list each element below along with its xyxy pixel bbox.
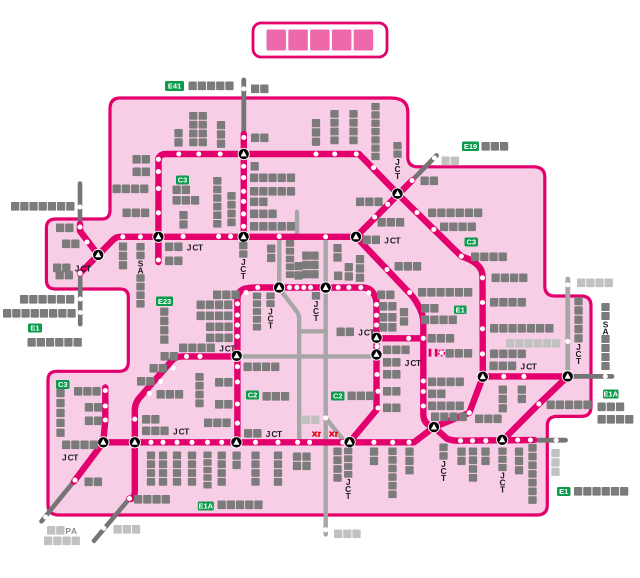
svg-text:A: A: [602, 326, 608, 336]
svg-text:A: A: [137, 266, 143, 276]
svg-text:T: T: [86, 263, 92, 273]
svg-text:E1A: E1A: [199, 502, 214, 511]
svg-text:C2: C2: [248, 391, 258, 400]
svg-text:T: T: [230, 343, 236, 353]
svg-text:T: T: [396, 235, 402, 245]
svg-text:E1A: E1A: [603, 390, 618, 399]
svg-text:C3: C3: [178, 176, 188, 185]
svg-text:J: J: [75, 263, 80, 273]
svg-text:T: T: [576, 356, 582, 366]
svg-text:T: T: [198, 242, 204, 252]
svg-text:T: T: [277, 429, 283, 439]
svg-text:T: T: [346, 491, 352, 501]
svg-text:T: T: [241, 271, 247, 281]
svg-text:T: T: [532, 361, 538, 371]
svg-text:T: T: [500, 484, 506, 494]
svg-text:J: J: [384, 235, 389, 245]
svg-text:J: J: [405, 358, 410, 368]
svg-text:T: T: [395, 171, 401, 181]
svg-text:J: J: [521, 361, 526, 371]
svg-text:J: J: [358, 327, 363, 337]
svg-text:C3: C3: [466, 238, 476, 247]
svg-text:J: J: [219, 343, 224, 353]
svg-text:E23: E23: [158, 297, 171, 306]
svg-text:A: A: [71, 526, 77, 536]
svg-text:J: J: [187, 242, 192, 252]
svg-text:T: T: [416, 358, 422, 368]
svg-text:T: T: [73, 452, 79, 462]
svg-text:T: T: [268, 320, 274, 330]
svg-text:C3: C3: [58, 380, 68, 389]
svg-text:T: T: [184, 426, 190, 436]
svg-text:T: T: [313, 313, 319, 323]
svg-text:E19: E19: [464, 142, 477, 151]
svg-text:E41: E41: [168, 82, 181, 91]
svg-text:E1: E1: [456, 305, 465, 314]
svg-text:J: J: [266, 429, 271, 439]
svg-text:E1: E1: [559, 487, 568, 496]
svg-text:J: J: [173, 426, 178, 436]
svg-text:J: J: [62, 452, 67, 462]
svg-text:E1: E1: [30, 324, 39, 333]
svg-text:C2: C2: [333, 392, 343, 401]
svg-text:T: T: [370, 327, 376, 337]
svg-text:T: T: [441, 473, 447, 483]
